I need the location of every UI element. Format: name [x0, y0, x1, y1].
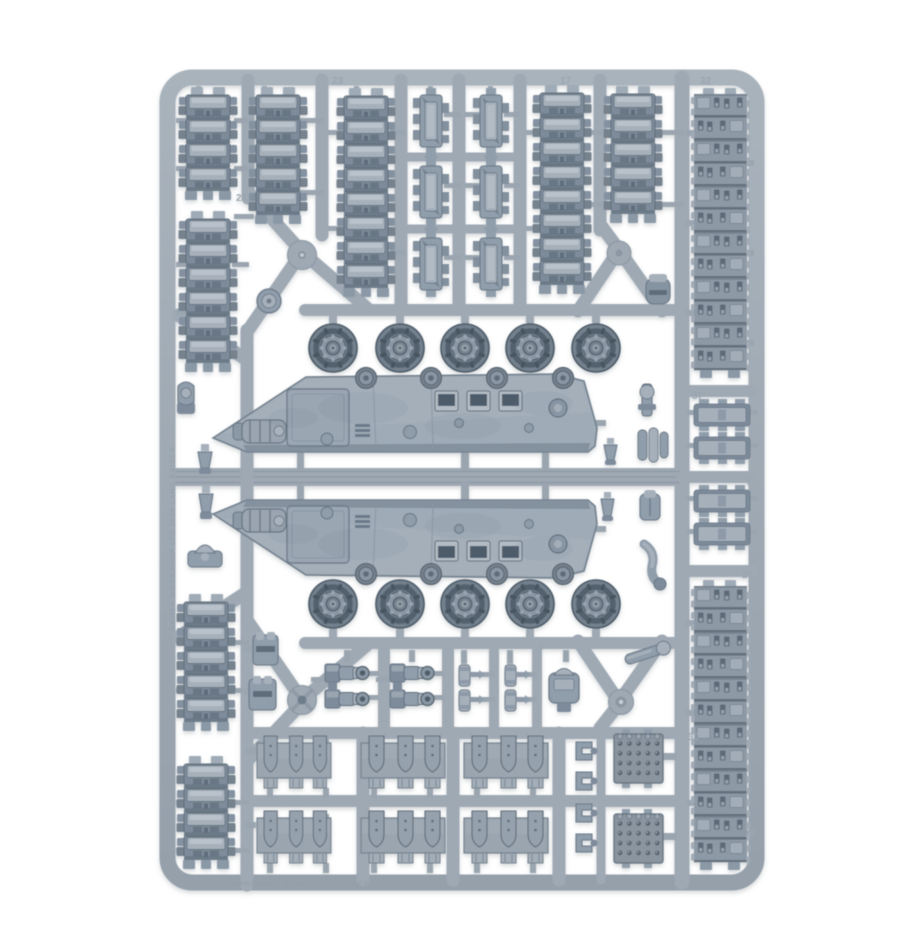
svg-text:WARHAMMER 40000 LAND RAIDER: WARHAMMER 40000 LAND RAIDER: [225, 881, 370, 888]
svg-text:28: 28: [236, 193, 248, 204]
svg-text:37: 37: [692, 391, 704, 402]
svg-text:25: 25: [742, 570, 754, 581]
svg-text:23: 23: [332, 76, 344, 87]
svg-text:32: 32: [700, 76, 712, 87]
svg-text:© GAMES WORKSHOP LTD 2009 LAND: © GAMES WORKSHOP LTD 2009 LAND RAIDER: [169, 446, 177, 640]
svg-text:7: 7: [746, 477, 752, 488]
svg-text:30: 30: [688, 732, 700, 743]
svg-text:5: 5: [538, 642, 544, 653]
svg-text:17: 17: [560, 76, 572, 87]
